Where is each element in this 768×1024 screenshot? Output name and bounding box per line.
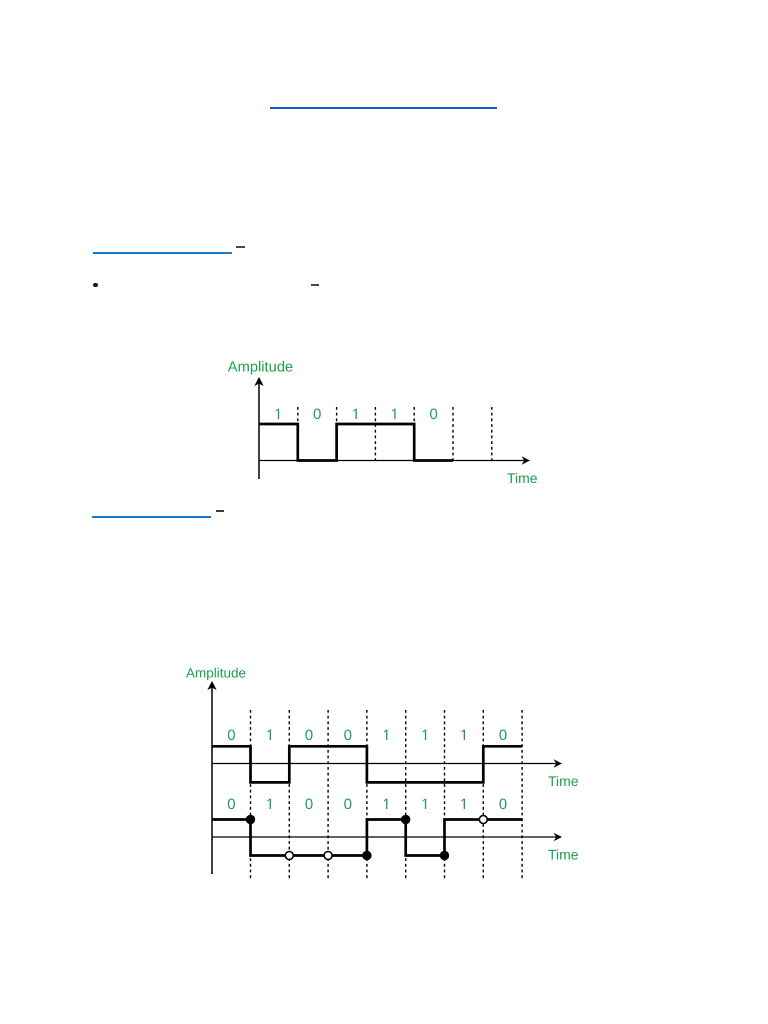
svg-text:Time: Time [548, 847, 579, 863]
svg-text:Amplitude: Amplitude [186, 665, 246, 680]
svg-text:Time: Time [548, 773, 579, 789]
svg-text:Amplitude: Amplitude [228, 359, 293, 375]
svg-text:Time: Time [507, 470, 538, 486]
